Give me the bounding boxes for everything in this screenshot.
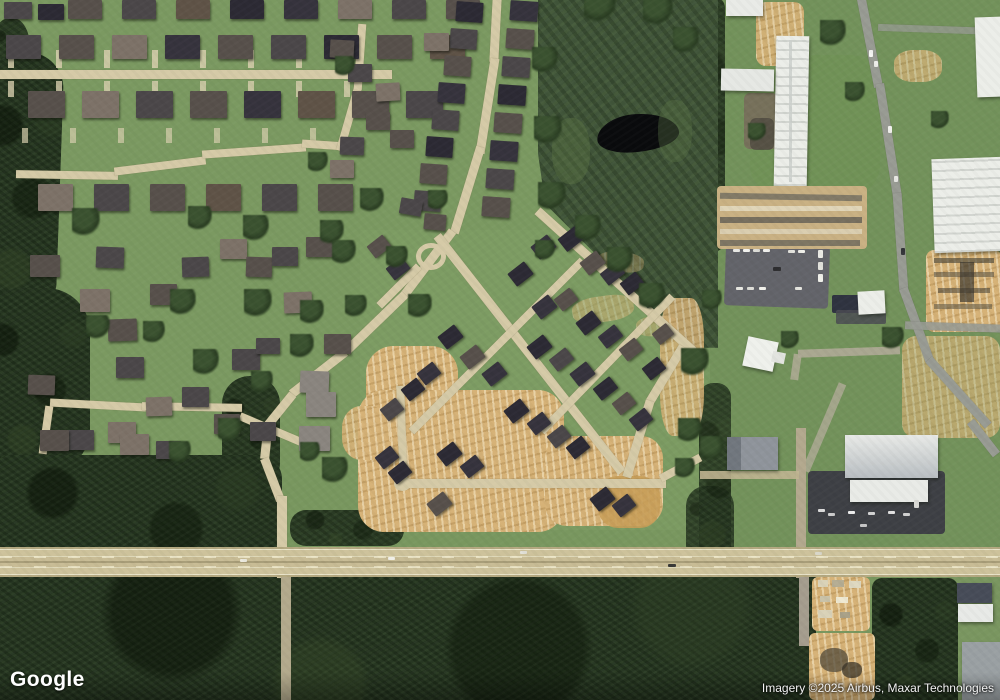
house (116, 357, 144, 378)
house (80, 289, 110, 312)
vehicle (869, 50, 873, 57)
vehicle (903, 513, 910, 516)
tree-canopy (820, 20, 846, 46)
lane-marking (0, 556, 1000, 558)
subdivision-street (404, 479, 666, 488)
house (150, 184, 185, 211)
house (40, 430, 69, 451)
house (423, 213, 446, 231)
vehicle (818, 274, 823, 282)
house (182, 387, 209, 407)
house (4, 2, 32, 19)
office-building (857, 290, 885, 314)
tree-canopy (408, 294, 432, 318)
yard-structure (818, 580, 828, 587)
house (377, 35, 412, 59)
tree-canopy (308, 152, 328, 172)
tree-canopy (360, 188, 384, 212)
vehicle (818, 509, 825, 512)
house (165, 35, 200, 59)
house (481, 196, 510, 218)
house (250, 422, 276, 441)
tree-canopy (243, 215, 269, 241)
tree-canopy (143, 321, 165, 343)
vehicle (901, 248, 905, 255)
vehicle (388, 557, 395, 560)
vehicle (888, 511, 895, 514)
house (220, 239, 247, 259)
vehicle (868, 512, 875, 515)
vehicle (743, 249, 750, 252)
tree-canopy (535, 240, 555, 260)
tree-canopy (607, 247, 633, 273)
house (256, 338, 280, 354)
yard-structure (836, 597, 848, 603)
vehicle (874, 61, 878, 67)
house (505, 28, 534, 50)
vehicle (818, 250, 823, 258)
house (146, 397, 173, 417)
tree-canopy (244, 289, 272, 317)
vehicle (888, 126, 892, 133)
tree-canopy (673, 27, 699, 53)
vehicle (759, 287, 766, 290)
house (338, 0, 372, 19)
tree-canopy (300, 442, 320, 462)
office-building-wing (771, 351, 786, 364)
vehicle (815, 552, 822, 555)
dirt-patch (894, 50, 942, 82)
tree-canopy (428, 190, 448, 210)
house (419, 163, 447, 185)
vehicle (860, 524, 867, 527)
house (443, 55, 471, 77)
house (272, 247, 298, 266)
warehouse (850, 480, 928, 502)
industrial-building (721, 69, 774, 92)
vehicle (914, 500, 919, 508)
roof-ridge (789, 40, 792, 182)
tree-canopy (678, 418, 702, 442)
tree-canopy (534, 116, 562, 144)
tree-canopy (335, 56, 355, 76)
house (271, 35, 306, 59)
cul-de-sac (416, 243, 446, 270)
field-light-patch (658, 100, 692, 162)
tree-canopy (193, 349, 219, 375)
house (284, 0, 318, 19)
house (485, 168, 514, 190)
street (0, 70, 392, 79)
vehicle (733, 249, 740, 252)
house (28, 375, 56, 396)
tree-canopy (931, 111, 949, 129)
house (120, 434, 149, 455)
tree-canopy (675, 458, 695, 478)
tree-canopy (188, 206, 212, 230)
house (425, 136, 453, 158)
tree-canopy (584, 0, 616, 22)
house (437, 82, 465, 104)
tree-canopy (218, 418, 242, 442)
house (94, 184, 129, 211)
vehicle (520, 551, 527, 554)
highway (0, 547, 1000, 577)
vehicle (894, 176, 898, 182)
vehicle (747, 287, 754, 290)
house (390, 130, 414, 148)
house (136, 91, 173, 118)
tree-canopy (538, 182, 566, 210)
house (501, 56, 530, 78)
storage-row (720, 206, 862, 211)
vehicle (763, 249, 770, 252)
house (262, 184, 297, 211)
house (96, 247, 125, 269)
yard-structure (832, 580, 844, 587)
tree-canopy (643, 0, 673, 25)
substation-equipment (960, 262, 974, 302)
house (455, 1, 483, 23)
tree-canopy (532, 47, 558, 73)
vehicle (795, 287, 802, 290)
industrial-building-wing (727, 437, 741, 470)
house (318, 184, 353, 211)
forest-bottom-band (0, 574, 816, 700)
house (38, 184, 73, 211)
parking-lot (724, 243, 830, 309)
tree-canopy (700, 436, 724, 460)
tree-canopy (386, 246, 408, 268)
house (190, 91, 227, 118)
tree-canopy (169, 441, 191, 463)
house (182, 257, 210, 278)
storage-row (720, 240, 860, 246)
tree-canopy (86, 315, 110, 339)
house (298, 91, 335, 118)
tree-canopy (639, 283, 665, 309)
house (68, 430, 94, 450)
google-logo[interactable]: Google (10, 668, 85, 692)
tree-canopy (251, 371, 273, 393)
house (68, 0, 102, 19)
vehicle (798, 250, 805, 253)
industrial-building (962, 642, 1000, 700)
house (6, 35, 41, 59)
tree-canopy (681, 348, 709, 376)
house (300, 371, 330, 394)
house (449, 28, 477, 50)
access-road (799, 576, 809, 646)
vehicle (828, 513, 835, 516)
satellite-map-canvas[interactable]: Google Imagery ©2025 Airbus, Maxar Techn… (0, 0, 1000, 700)
forest-bottom-right-strip (872, 578, 958, 700)
access-road (700, 471, 799, 479)
house (493, 112, 522, 134)
vehicle (788, 250, 795, 253)
warehouse (931, 157, 1000, 253)
house (392, 0, 426, 19)
house (82, 91, 119, 118)
warehouse (845, 435, 938, 478)
lane-marking (0, 566, 1000, 568)
house (306, 392, 336, 417)
yard-structure (849, 581, 861, 588)
vehicle (753, 249, 760, 252)
tree-canopy (702, 290, 722, 310)
tree-canopy (290, 334, 314, 358)
vehicle (240, 559, 247, 562)
house (324, 334, 351, 354)
house (28, 91, 65, 118)
substation-row (934, 304, 992, 309)
industrial-building (975, 17, 1000, 98)
yard-blotch (842, 662, 862, 678)
tree-canopy (882, 327, 904, 349)
tree-canopy (845, 82, 865, 102)
house (509, 0, 538, 22)
house (230, 0, 264, 19)
tree-canopy (332, 240, 356, 264)
industrial-building (957, 583, 992, 603)
house (30, 255, 60, 277)
house (218, 35, 253, 59)
house (59, 35, 94, 59)
rural-road (281, 576, 291, 700)
house (376, 82, 401, 101)
house (38, 4, 64, 20)
storage-row (720, 217, 862, 223)
vehicle (773, 267, 781, 271)
house (112, 35, 147, 59)
vehicle (848, 511, 855, 514)
yard-structure (820, 596, 830, 602)
house (340, 137, 365, 156)
tree-canopy (300, 300, 324, 324)
storage-row (720, 229, 862, 234)
house (122, 0, 156, 19)
house (424, 33, 449, 51)
industrial-building (726, 0, 763, 16)
tree-canopy (748, 123, 766, 141)
house (497, 84, 526, 106)
house (246, 257, 273, 278)
yard-structure (818, 610, 832, 618)
house (244, 91, 281, 118)
tree-canopy (72, 208, 100, 236)
industrial-building (958, 604, 993, 622)
house (330, 160, 354, 178)
vehicle (818, 262, 823, 270)
house (176, 0, 210, 19)
tree-canopy (781, 331, 799, 349)
vehicle (736, 287, 743, 290)
tree-canopy (575, 215, 601, 241)
house (431, 109, 459, 131)
tree-canopy (322, 457, 348, 483)
tree-canopy (345, 295, 367, 317)
house (489, 140, 518, 162)
house (108, 319, 138, 342)
tree-canopy (170, 289, 196, 315)
yard-structure (840, 612, 850, 618)
vehicle (668, 564, 676, 567)
house (366, 112, 390, 130)
